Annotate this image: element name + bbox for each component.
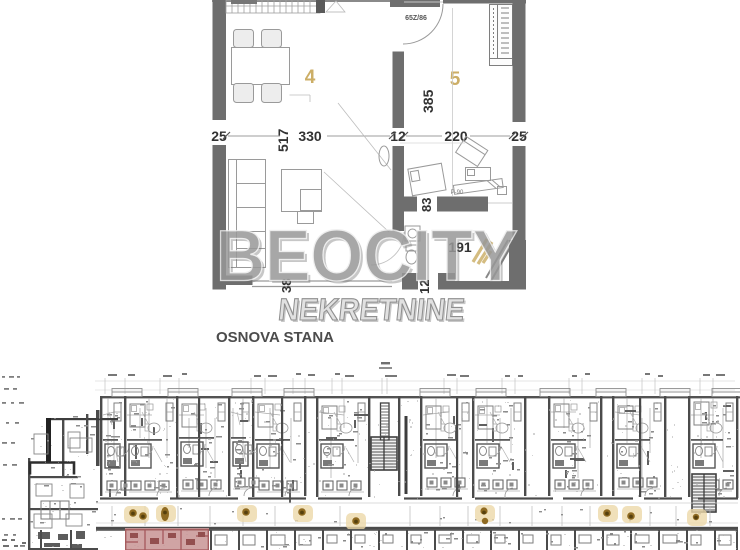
svg-text:517: 517 <box>275 128 291 152</box>
svg-text:5: 5 <box>450 69 461 90</box>
svg-text:65Z/86: 65Z/86 <box>405 15 427 22</box>
svg-text:330: 330 <box>298 128 322 144</box>
svg-text:BEOCITY: BEOCITY <box>216 217 518 297</box>
svg-text:P-90: P-90 <box>451 190 464 196</box>
svg-text:25: 25 <box>211 128 227 144</box>
svg-text:OSNOVA STANA: OSNOVA STANA <box>216 329 334 346</box>
svg-text:4: 4 <box>305 67 316 88</box>
svg-text:NEKRETNINE: NEKRETNINE <box>277 292 467 327</box>
svg-text:385: 385 <box>420 89 436 113</box>
svg-text:83: 83 <box>419 198 434 212</box>
